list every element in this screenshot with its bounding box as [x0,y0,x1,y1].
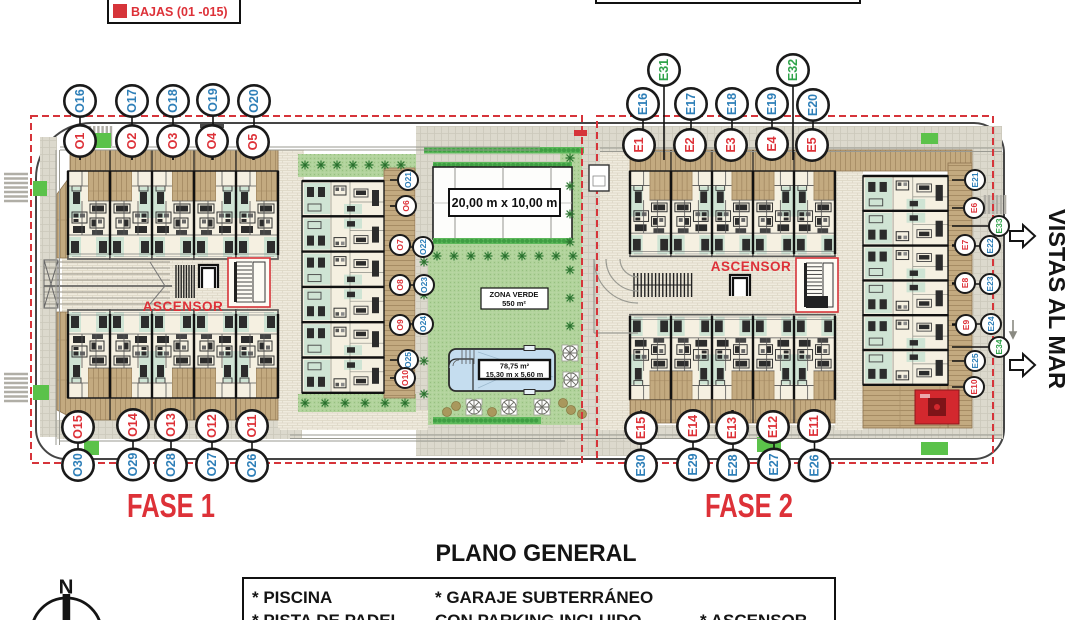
svg-text:O15: O15 [71,415,85,439]
svg-text:20,00 m x 10,00 m: 20,00 m x 10,00 m [452,196,558,210]
svg-text:O16: O16 [73,89,87,113]
svg-text:O4: O4 [205,133,219,150]
svg-text:E25: E25 [970,353,980,368]
svg-text:O19: O19 [206,88,220,112]
svg-text:E23: E23 [985,276,995,291]
svg-text:E10: E10 [969,379,979,394]
svg-text:E34: E34 [994,339,1004,354]
svg-text:E20: E20 [806,94,820,116]
svg-text:O3: O3 [166,133,180,150]
svg-text:E12: E12 [766,416,780,438]
svg-text:E16: E16 [636,93,650,115]
svg-text:O25: O25 [403,352,413,368]
svg-text:E19: E19 [765,93,779,115]
svg-text:O28: O28 [164,453,178,477]
svg-text:E28: E28 [726,454,740,476]
svg-text:CON PARKING INCLUIDO: CON PARKING INCLUIDO [435,611,642,620]
svg-text:O1: O1 [73,133,87,150]
svg-text:E29: E29 [686,453,700,475]
svg-text:ZONA VERDE: ZONA VERDE [490,290,539,299]
svg-text:O8: O8 [395,279,405,291]
svg-text:E6: E6 [969,203,979,214]
svg-text:O2: O2 [125,133,139,150]
svg-text:550 m²: 550 m² [502,299,526,308]
svg-text:O27: O27 [205,453,219,477]
svg-text:E22: E22 [985,238,995,253]
svg-text:O21: O21 [403,172,413,188]
svg-text:BAJAS (01 -015): BAJAS (01 -015) [131,5,228,19]
svg-text:15,30 m x 5,60 m: 15,30 m x 5,60 m [486,370,544,379]
svg-text:E1: E1 [632,137,646,152]
svg-text:E15: E15 [634,417,648,439]
svg-text:FASE 2: FASE 2 [705,487,793,524]
svg-text:O30: O30 [71,453,85,477]
svg-text:O29: O29 [126,453,140,477]
svg-text:E26: E26 [808,454,822,476]
svg-text:O9: O9 [395,319,405,331]
svg-text:E5: E5 [805,137,819,152]
svg-text:E7: E7 [960,240,970,251]
svg-text:E14: E14 [686,415,700,437]
svg-text:E11: E11 [807,415,821,437]
svg-text:O12: O12 [205,414,219,438]
svg-text:O7: O7 [395,239,405,251]
svg-text:O10: O10 [400,370,410,386]
svg-text:O17: O17 [125,89,139,113]
svg-text:E27: E27 [767,453,781,475]
svg-text:E31: E31 [657,59,671,81]
svg-text:O20: O20 [247,89,261,113]
svg-text:O11: O11 [245,414,259,437]
svg-text:O14: O14 [126,413,140,437]
svg-text:E30: E30 [634,454,648,476]
svg-text:* PISCINA: * PISCINA [252,588,332,607]
svg-text:* GARAJE SUBTERRÁNEO: * GARAJE SUBTERRÁNEO [435,588,653,607]
svg-text:* PISTA DE PADEL: * PISTA DE PADEL [252,611,401,620]
svg-text:O23: O23 [419,277,429,293]
svg-text:E9: E9 [961,320,971,331]
svg-text:O22: O22 [418,239,428,255]
svg-text:E8: E8 [960,278,970,289]
svg-text:O18: O18 [166,89,180,113]
svg-text:O24: O24 [418,316,428,332]
svg-text:E17: E17 [684,93,698,115]
svg-text:O6: O6 [401,200,411,212]
svg-text:E33: E33 [994,218,1004,233]
svg-text:E32: E32 [786,59,800,81]
svg-text:O13: O13 [164,413,178,437]
svg-text:FASE 1: FASE 1 [127,487,215,524]
svg-text:E24: E24 [986,316,996,331]
svg-text:E13: E13 [725,417,739,439]
svg-text:VISTAS AL MAR: VISTAS AL MAR [1044,209,1070,389]
svg-text:PLANO GENERAL: PLANO GENERAL [436,540,637,567]
svg-text:ASCENSOR: ASCENSOR [711,259,792,274]
svg-text:O26: O26 [245,454,259,478]
svg-text:E4: E4 [765,136,779,151]
svg-text:E2: E2 [683,137,697,152]
svg-text:E21: E21 [970,172,980,187]
svg-text:E3: E3 [724,137,738,152]
svg-text:* ASCENSOR: * ASCENSOR [700,611,807,620]
svg-text:E18: E18 [725,93,739,115]
svg-text:O5: O5 [246,134,260,151]
svg-text:ASCENSOR: ASCENSOR [143,299,224,314]
